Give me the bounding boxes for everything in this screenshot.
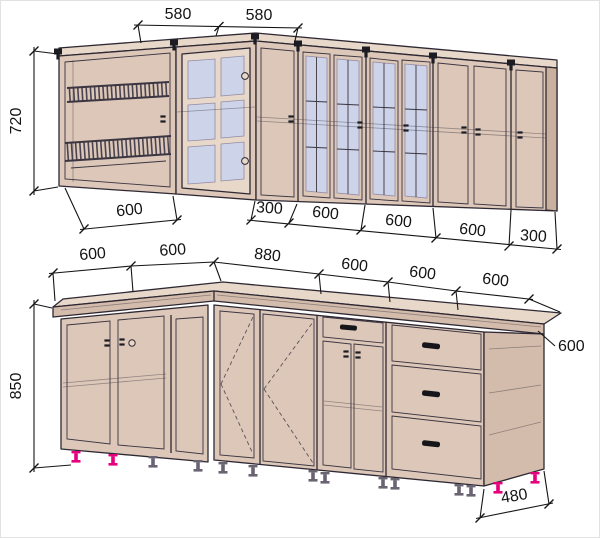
door-knob (129, 340, 135, 346)
dimension-label: 300 (519, 227, 547, 246)
dimension-label: 600 (159, 241, 187, 260)
dimension-label: 600 (408, 263, 437, 283)
technical-drawing-canvas: 580 580 720 600 30 (0, 0, 600, 538)
dimension-label: 600 (340, 255, 369, 275)
dimension-label: 880 (253, 246, 281, 266)
dimension-label: 600 (458, 221, 486, 241)
dimension-label: 600 (115, 201, 143, 221)
dimension-label: 580 (165, 6, 192, 23)
dimension-label: 600 (558, 338, 585, 355)
dimension-label: 300 (255, 199, 283, 218)
base-long-run (214, 305, 544, 486)
dimension-label: 600 (481, 270, 510, 290)
kitchen-cabinet-drawing: 580 580 720 600 30 (1, 1, 599, 537)
dimension-label: 480 (500, 486, 529, 507)
lower-cabinets-view: 600 600 880 600 600 600 600 850 (8, 241, 585, 522)
door-knob (242, 158, 249, 165)
dimension-label: 600 (384, 212, 412, 232)
upper-cabinets-view: 580 580 720 600 30 (8, 6, 562, 254)
dimension-label: 600 (79, 245, 107, 264)
upper-left-cabinet (59, 47, 176, 194)
dimension-label: 720 (8, 108, 25, 135)
counter-depth-leader: 600 (538, 331, 585, 355)
upper-height-dimension: 720 (8, 47, 58, 196)
upper-corner-glass-cabinet (176, 41, 256, 200)
base-left-arm (61, 305, 208, 462)
door-knob (242, 73, 249, 80)
dimension-label: 850 (8, 373, 25, 400)
dimension-label: 600 (311, 204, 339, 224)
dimension-label: 580 (246, 7, 273, 24)
